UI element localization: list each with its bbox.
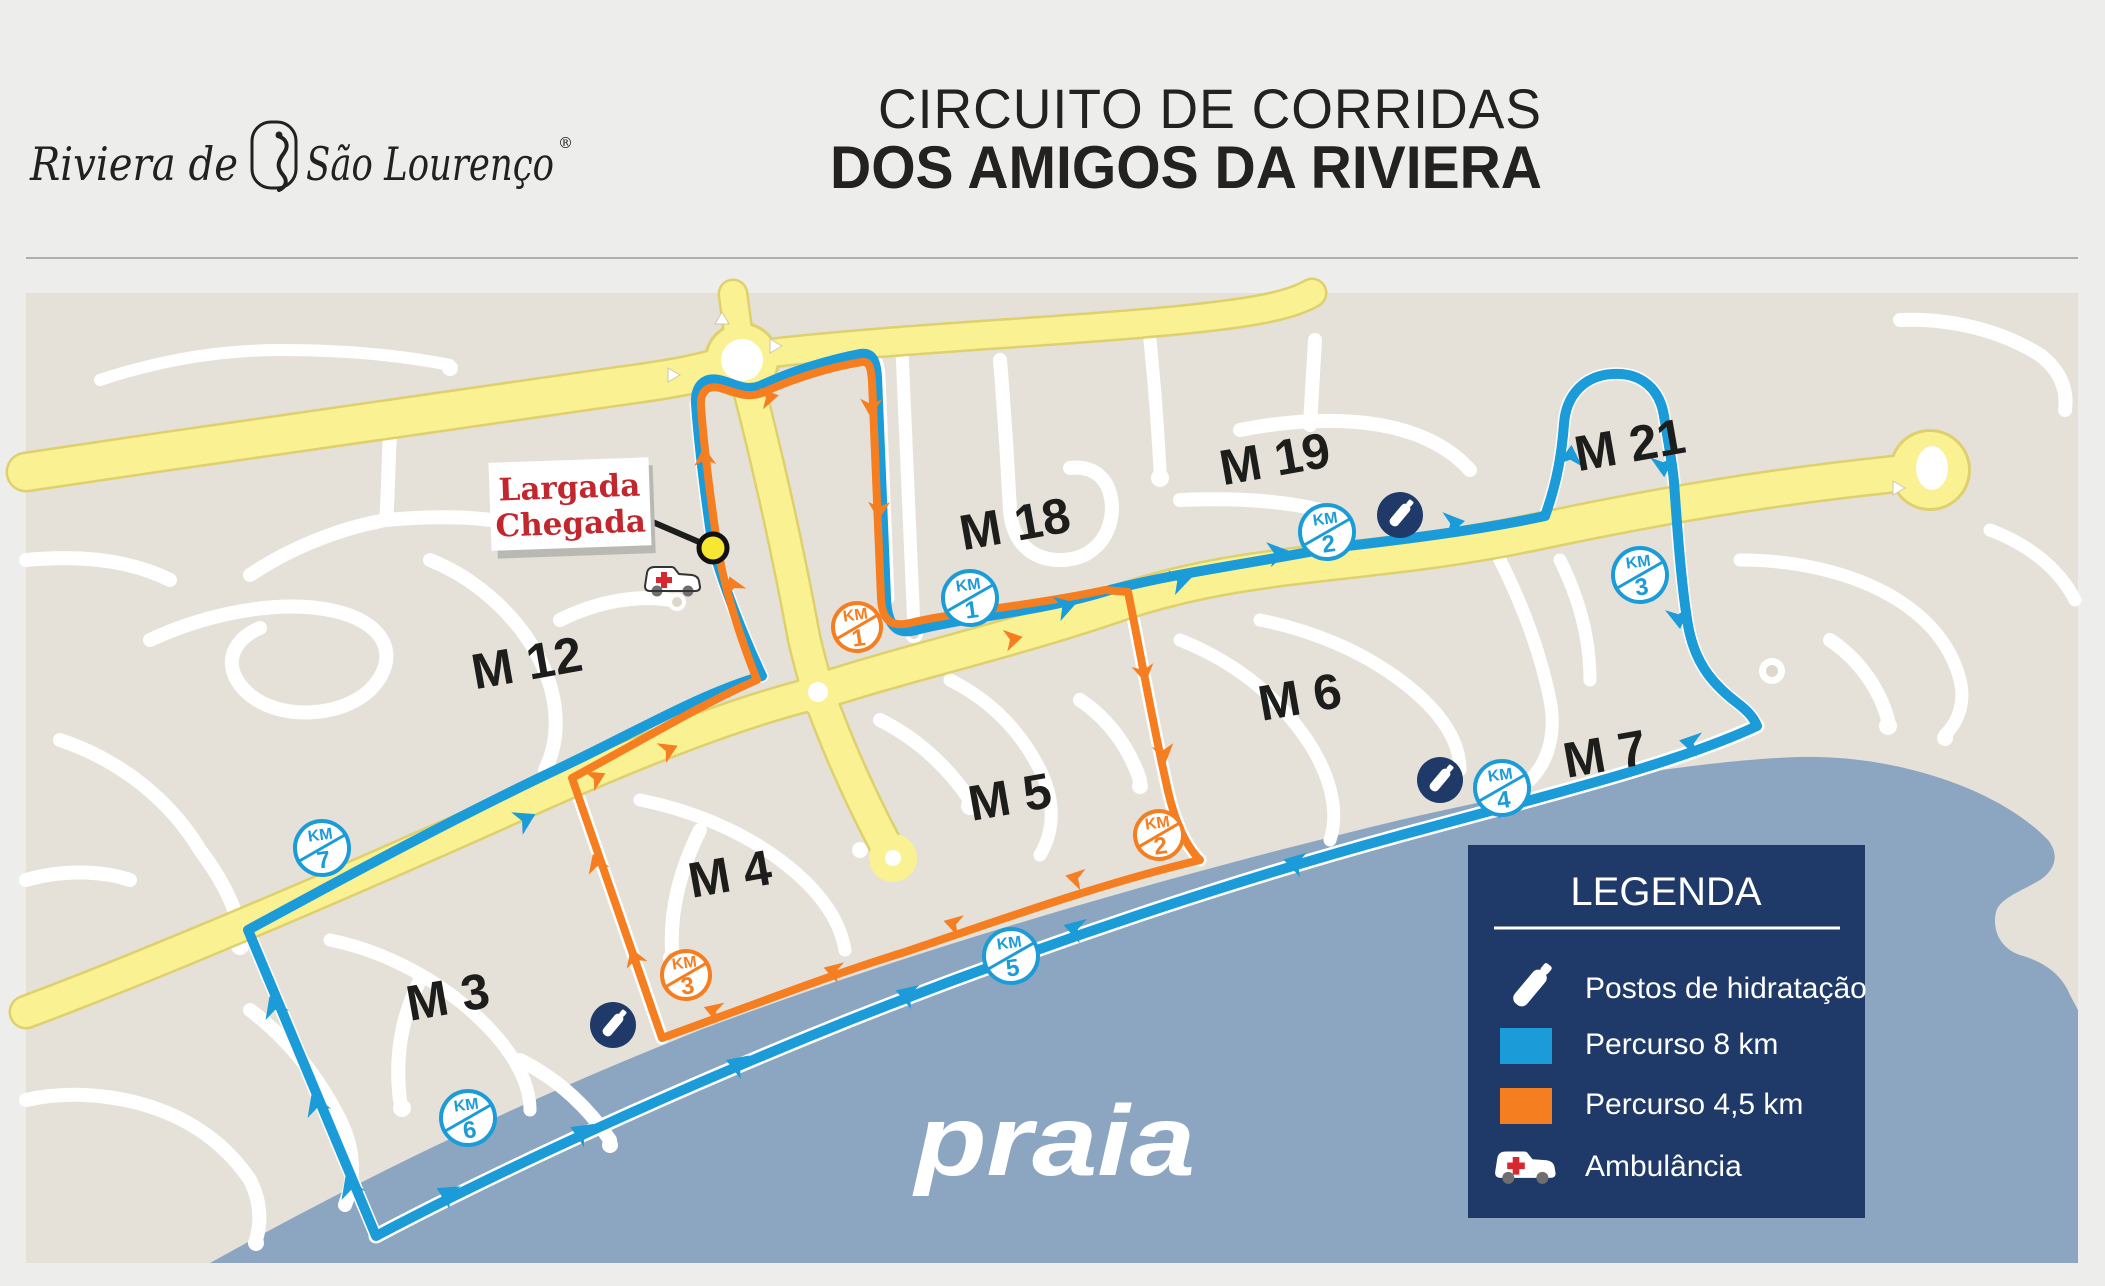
- route-8km-swatch: [1500, 1028, 1552, 1064]
- legend-item-label: Percurso 4,5 km: [1585, 1088, 1803, 1121]
- seahorse-logo-icon: [252, 122, 296, 190]
- hydration-station-icon: [590, 1002, 636, 1048]
- logo-text-suffix: São Lourenço: [306, 137, 554, 191]
- legend-title: LEGENDA: [1570, 870, 1761, 914]
- route-4-5km-swatch: [1500, 1088, 1552, 1124]
- logo-registered-mark: ®: [558, 134, 573, 152]
- svg-text:KM: KM: [1625, 552, 1652, 572]
- svg-text:KM: KM: [955, 575, 982, 595]
- circuit-map: Riviera de São Lourenço ® CIRCUITO DE CO…: [0, 0, 2105, 1286]
- legend-item-label: Postos de hidratação: [1585, 972, 1867, 1005]
- svg-text:KM: KM: [1487, 765, 1514, 785]
- logo-text-prefix: Riviera de: [29, 137, 238, 191]
- legend-item-label: Percurso 8 km: [1585, 1028, 1778, 1061]
- svg-text:KM: KM: [996, 933, 1023, 953]
- beach-label: praia: [911, 1085, 1195, 1197]
- svg-text:KM: KM: [671, 953, 698, 973]
- sign-line1: Largada: [498, 468, 641, 509]
- svg-text:KM: KM: [1144, 813, 1171, 833]
- start-point: [699, 534, 727, 562]
- sign-line2: Chegada: [495, 503, 647, 544]
- legend: LEGENDA Postos de hidratação Percurso 8 …: [1468, 845, 1867, 1218]
- svg-text:KM: KM: [307, 825, 334, 845]
- poster: Riviera de São Lourenço ® CIRCUITO DE CO…: [0, 0, 2105, 1286]
- legend-item-label: Ambulância: [1585, 1150, 1742, 1183]
- header: Riviera de São Lourenço ® CIRCUITO DE CO…: [26, 77, 2078, 258]
- hydration-station-icon: [1377, 492, 1423, 538]
- svg-text:KM: KM: [842, 605, 869, 625]
- poster-title-line1: CIRCUITO DE CORRIDAS: [878, 77, 1542, 140]
- svg-text:KM: KM: [1312, 509, 1339, 529]
- poster-title-line2: DOS AMIGOS DA RIVIERA: [830, 134, 1542, 201]
- hydration-station-icon: [1417, 757, 1463, 803]
- svg-text:KM: KM: [453, 1095, 480, 1115]
